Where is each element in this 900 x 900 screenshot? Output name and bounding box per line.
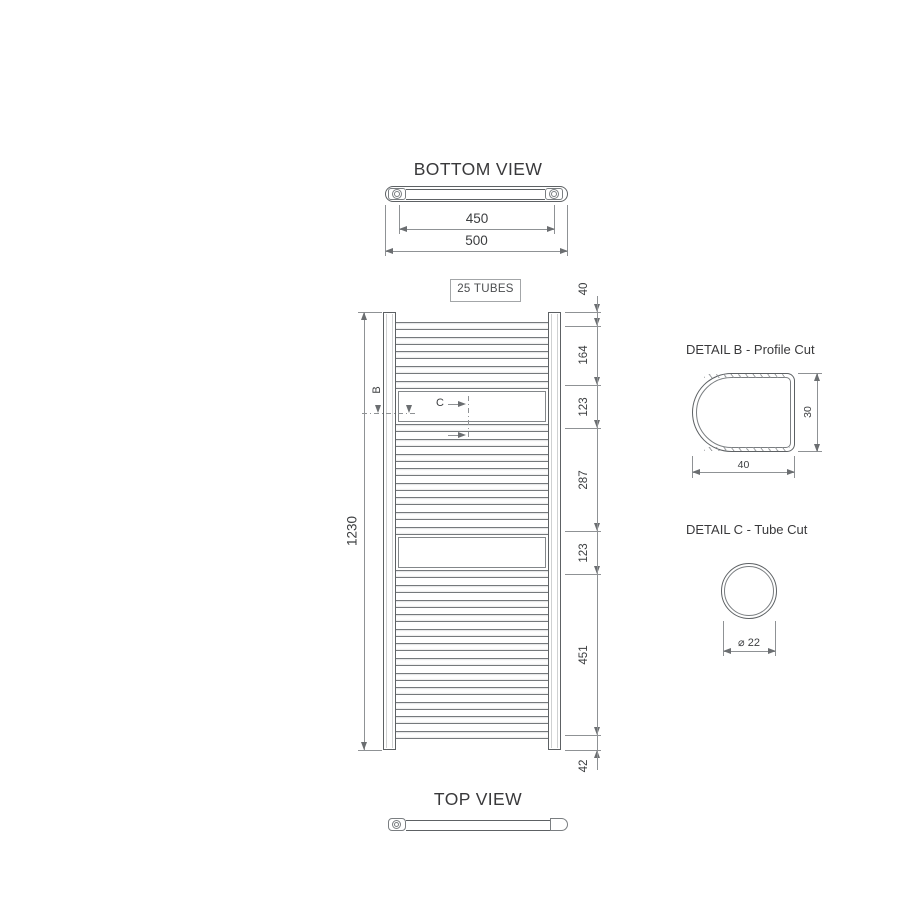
section-b-cut-line — [362, 413, 415, 414]
tube — [395, 439, 549, 447]
section-c-arrow-icon — [458, 432, 466, 438]
section-b-arrow-icon — [375, 405, 381, 413]
section-c-arrow-icon — [458, 401, 466, 407]
dim-line-40 — [692, 472, 795, 473]
tube — [395, 585, 549, 593]
front-view-right-rail — [548, 312, 561, 750]
hatch-pattern — [704, 447, 790, 451]
arrow-down-icon — [361, 742, 367, 750]
rail-inner-line — [386, 314, 393, 748]
tube — [395, 483, 549, 491]
tube — [395, 614, 549, 622]
top-view-title: TOP VIEW — [368, 789, 588, 810]
section-b-arrow-icon — [406, 405, 412, 413]
chain-label-451: 451 — [578, 645, 590, 664]
arrow-up-icon — [814, 373, 820, 381]
detail-c-tube-inner — [724, 566, 774, 616]
ext-line — [565, 574, 601, 575]
chain-label-42: 42 — [578, 760, 590, 773]
top-view-tube-bar — [406, 820, 550, 831]
ext-line — [565, 531, 601, 532]
chain-label-40: 40 — [578, 283, 590, 296]
tube — [395, 381, 549, 389]
tube — [395, 716, 549, 724]
gap-panel — [398, 391, 546, 423]
tube — [395, 468, 549, 476]
ext-line — [565, 735, 601, 736]
ext-line — [565, 326, 601, 327]
tube — [395, 527, 549, 535]
hatch-pattern — [704, 374, 790, 378]
tube — [395, 731, 549, 739]
tube — [395, 687, 549, 695]
tube — [395, 570, 549, 578]
dim-line-1230 — [364, 312, 365, 750]
tube — [395, 658, 549, 666]
technical-drawing-canvas: BOTTOM VIEW 450 500 25 TUBES 1230 40 164… — [0, 0, 900, 900]
section-c-cut-line — [468, 396, 469, 440]
tube — [395, 673, 549, 681]
dim-label-dia22: ⌀ 22 — [711, 636, 787, 649]
dim-chain-line — [597, 296, 598, 770]
ext-line — [565, 312, 601, 313]
ext-line — [358, 750, 382, 751]
tube — [395, 351, 549, 359]
tube — [395, 337, 549, 345]
arrow-up-icon — [361, 312, 367, 320]
chain-label-164: 164 — [578, 345, 590, 364]
tube — [395, 643, 549, 651]
chain-label-287: 287 — [578, 470, 590, 489]
ext-line — [565, 385, 601, 386]
detail-b-title: DETAIL B - Profile Cut — [686, 342, 815, 357]
dim-line-30 — [817, 373, 818, 452]
dim-label-30: 30 — [802, 406, 814, 418]
rail-inner-line — [551, 314, 558, 748]
tube — [395, 497, 549, 505]
dim-label-1230: 1230 — [345, 516, 360, 546]
tube — [395, 629, 549, 637]
chain-label-123a: 123 — [578, 397, 590, 416]
tube — [395, 424, 549, 432]
chain-label-123b: 123 — [578, 543, 590, 562]
arrow-down-icon — [814, 444, 820, 452]
ext-line — [565, 428, 601, 429]
tube — [395, 454, 549, 462]
tube — [395, 366, 549, 374]
top-view-right-cap — [550, 818, 568, 831]
tube — [395, 702, 549, 710]
gap-panel — [398, 537, 546, 569]
top-view-left-hole-inner-icon — [394, 822, 399, 827]
tube — [395, 322, 549, 330]
section-c-label: C — [433, 397, 447, 409]
section-b-label: B — [371, 386, 383, 393]
detail-c-title: DETAIL C - Tube Cut — [686, 522, 807, 537]
front-view-left-rail — [383, 312, 396, 750]
tube — [395, 600, 549, 608]
dim-label-40: 40 — [692, 459, 795, 471]
tube — [395, 512, 549, 520]
detail-b-profile-inner — [696, 377, 791, 448]
